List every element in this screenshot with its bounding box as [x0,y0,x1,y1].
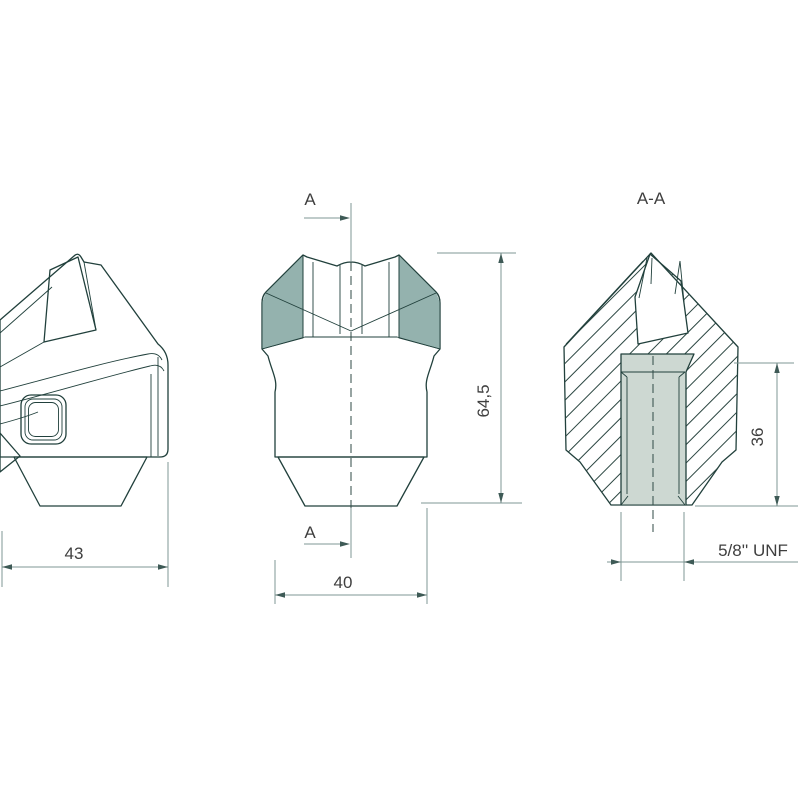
thread-spec-label: 5/8'' UNF [718,541,788,560]
dim-36-label: 36 [748,428,767,447]
dimension-front-height: 64,5 [421,253,522,503]
section-marker-top: A [304,190,350,221]
section-marker-top-label: A [304,190,316,209]
dim-43-label: 43 [65,544,84,563]
dim-40-label: 40 [334,573,353,592]
front-view: A A 40 64,5 [262,190,522,604]
side-skirt [14,457,147,506]
side-wedge [0,433,20,472]
technical-drawing: 43 A [0,0,800,800]
section-threaded-hole [621,354,694,532]
dim-64-5-label: 64,5 [474,384,493,417]
drawing-canvas: 43 A [0,0,800,800]
section-marker-bottom-label: A [304,523,316,542]
front-right-facet [399,255,440,349]
front-left-facet [262,255,303,349]
side-wing-facet [44,257,96,342]
section-view: A-A [564,189,798,581]
side-recess [21,395,66,444]
side-view: 43 [0,254,168,587]
section-view-title: A-A [637,189,666,208]
dimension-thread-spec: 5/8'' UNF [607,512,798,581]
section-marker-bottom: A [304,523,350,547]
